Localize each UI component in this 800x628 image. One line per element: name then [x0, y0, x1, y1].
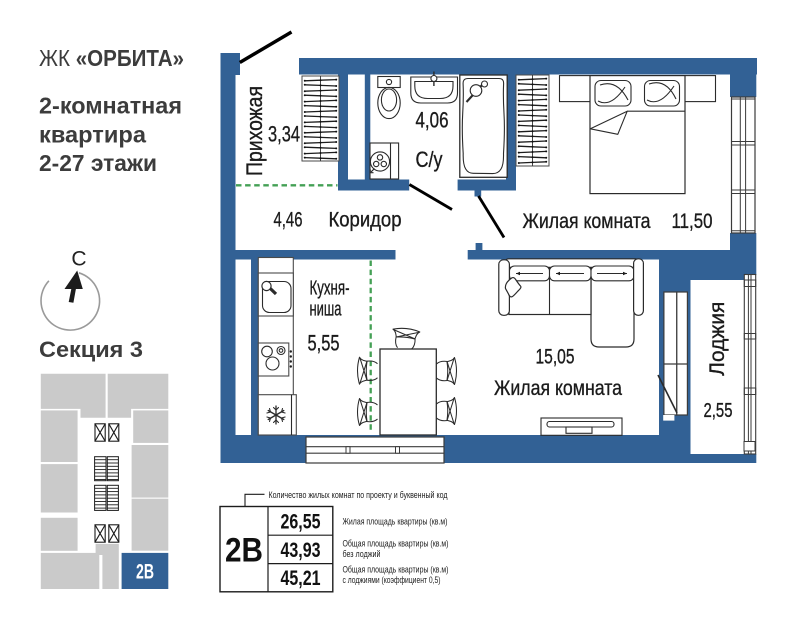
- svg-text:2-27 этажи: 2-27 этажи: [39, 150, 157, 176]
- svg-text:Общая площадь квартиры (кв.м): Общая площадь квартиры (кв.м): [343, 565, 449, 575]
- svg-text:Жилая комната: Жилая комната: [494, 376, 622, 400]
- svg-text:2В: 2В: [136, 561, 154, 584]
- svg-text:26,55: 26,55: [281, 511, 321, 534]
- svg-text:с лоджиями (коэффициент 0,5): с лоджиями (коэффициент 0,5): [343, 575, 441, 585]
- svg-text:4,06: 4,06: [416, 108, 449, 133]
- svg-text:квартира: квартира: [39, 122, 147, 148]
- svg-text:Жилая площадь квартиры (кв.м): Жилая площадь квартиры (кв.м): [343, 517, 448, 527]
- svg-text:4,46: 4,46: [274, 209, 303, 232]
- svg-text:Количество жилых комнат по про: Количество жилых комнат по проекту и бук…: [269, 490, 448, 500]
- svg-text:3,34: 3,34: [268, 122, 300, 147]
- svg-text:43,93: 43,93: [281, 539, 321, 562]
- svg-text:С: С: [71, 248, 86, 271]
- svg-text:без лоджий: без лоджий: [343, 549, 381, 559]
- svg-text:Общая площадь квартиры (кв.м): Общая площадь квартиры (кв.м): [343, 539, 449, 549]
- svg-text:15,05: 15,05: [536, 345, 575, 369]
- svg-text:2В: 2В: [225, 532, 263, 570]
- svg-text:Прихожая: Прихожая: [242, 86, 267, 176]
- svg-text:5,55: 5,55: [308, 331, 340, 356]
- svg-text:ниша: ниша: [310, 299, 343, 321]
- svg-text:45,21: 45,21: [281, 567, 321, 590]
- svg-text:Жилая комната: Жилая комната: [523, 209, 651, 233]
- svg-text:11,50: 11,50: [672, 209, 713, 233]
- svg-text:ЖК «ОРБИТА»: ЖК «ОРБИТА»: [39, 45, 184, 71]
- svg-text:Кухня-: Кухня-: [310, 278, 350, 300]
- svg-text:2,55: 2,55: [704, 400, 733, 422]
- svg-text:Секция 3: Секция 3: [39, 337, 143, 362]
- svg-text:Коридор: Коридор: [329, 209, 402, 232]
- svg-text:Лоджия: Лоджия: [705, 302, 729, 376]
- svg-text:2-комнатная: 2-комнатная: [39, 93, 182, 119]
- svg-text:С/у: С/у: [416, 147, 443, 172]
